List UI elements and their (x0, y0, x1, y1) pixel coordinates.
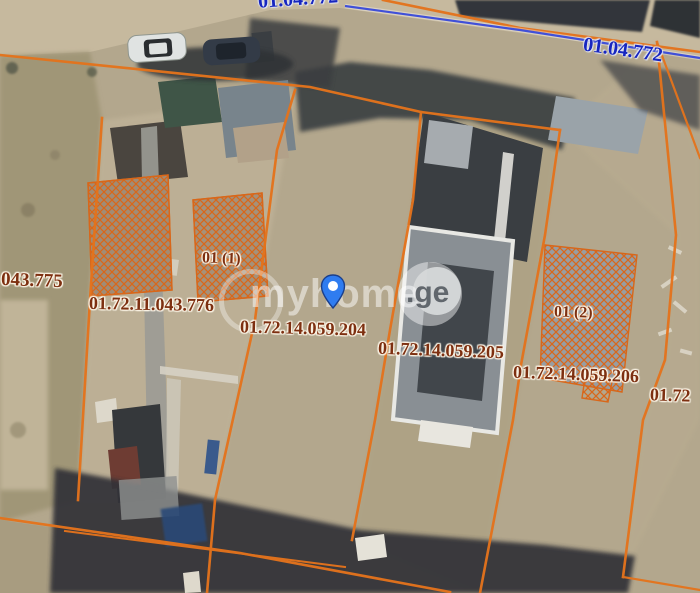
watermark-suffix: .ge (406, 278, 449, 308)
dark-car (202, 36, 261, 66)
parcel-label-059-205: 01.72.14.059.205 (378, 339, 505, 361)
parcel-label-043-776: 01.72.11.043.776 (89, 294, 214, 314)
location-pin[interactable] (320, 274, 346, 310)
parcel-label-059-204: 01.72.14.059.204 (240, 317, 366, 338)
white-car (127, 32, 187, 63)
parcel-label-01-72-partial: 01.72 (650, 385, 691, 404)
parcel-sublabel-01-1: 01 (1) (202, 250, 241, 267)
pin-icon (320, 274, 346, 310)
parcel-sublabel-01-2: 01 (2) (554, 304, 593, 321)
map-canvas[interactable]: myhome .ge 01.04.772 01.04.772 043.775 0… (0, 0, 700, 593)
parcel-label-059-206: 01.72.14.059.206 (513, 363, 640, 385)
parcel-label-043-775: 043.775 (1, 270, 63, 291)
